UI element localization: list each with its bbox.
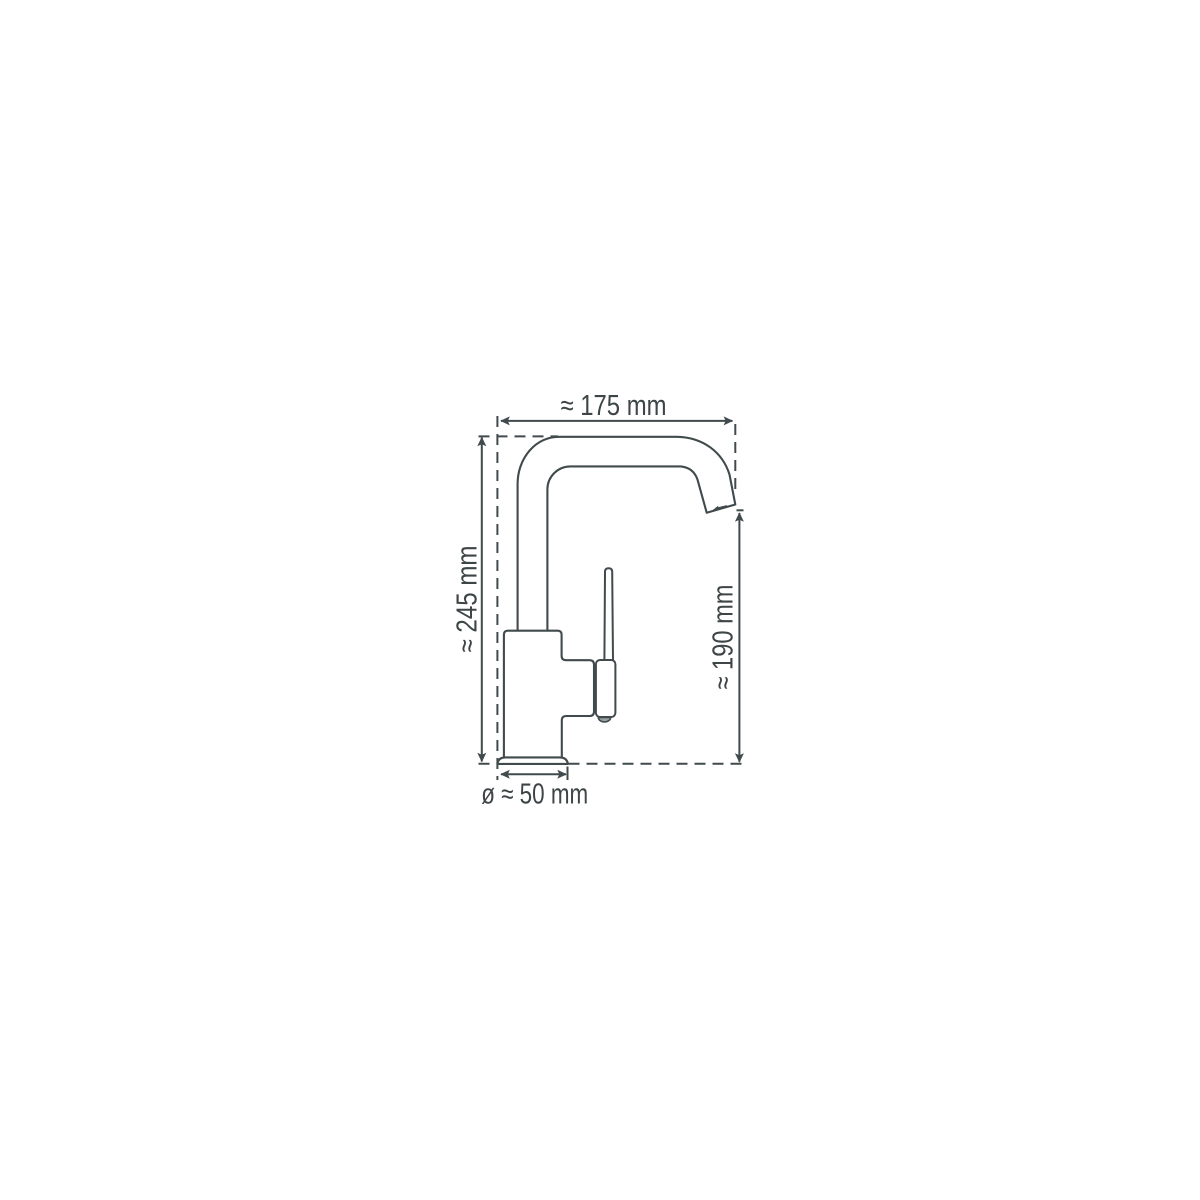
svg-text:≈ 245 mm: ≈ 245 mm [451,546,483,653]
svg-text:≈ 175 mm: ≈ 175 mm [561,390,667,422]
svg-text:ø ≈ 50 mm: ø ≈ 50 mm [481,779,588,811]
svg-text:≈ 190 mm: ≈ 190 mm [708,585,740,690]
